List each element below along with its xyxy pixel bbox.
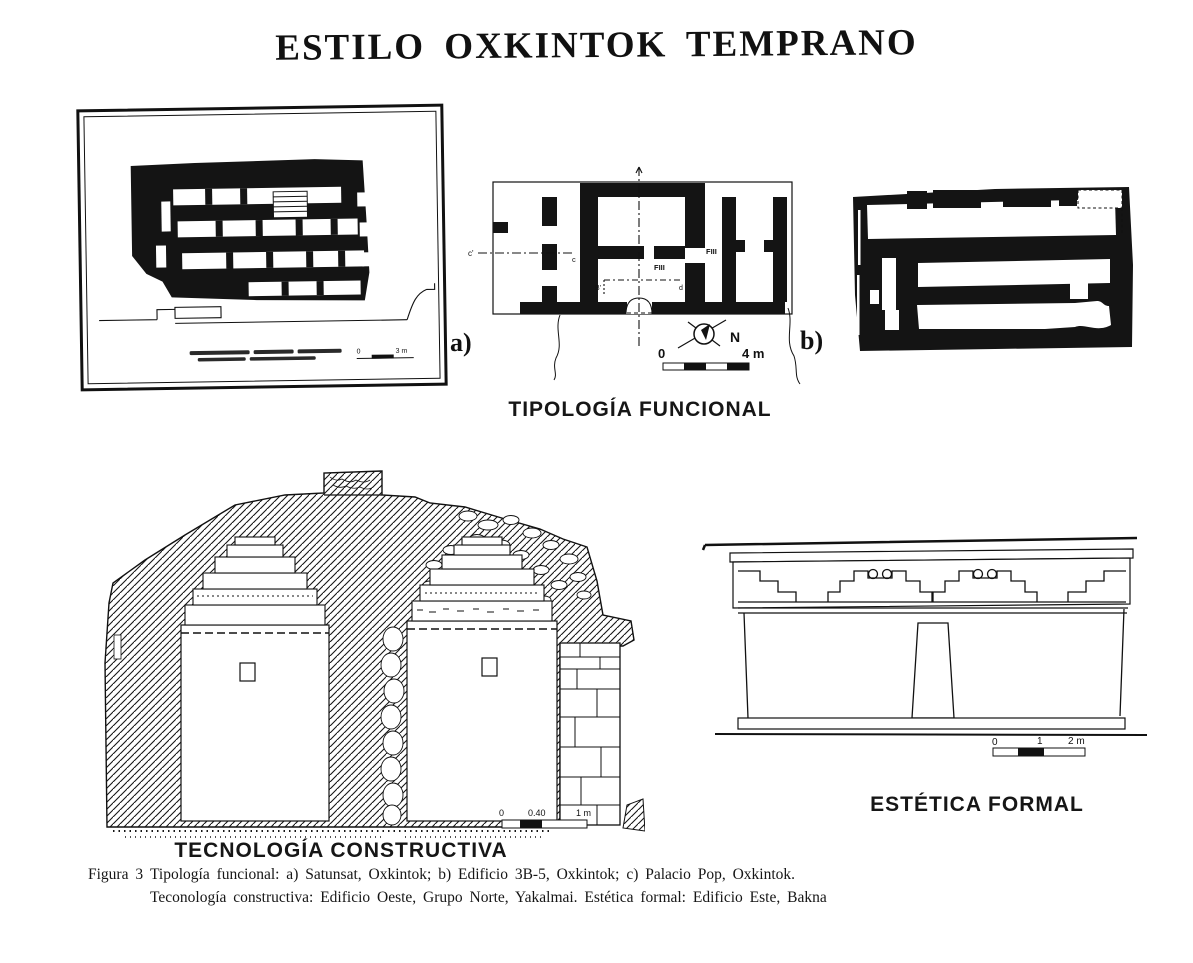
page-title: ESTILO OXKINTOK TEMPRANO bbox=[0, 19, 1193, 72]
svg-text:0.40: 0.40 bbox=[528, 808, 546, 818]
caption-line-1: Tipología funcional: a) Satunsat, Oxkint… bbox=[150, 864, 950, 887]
tipologia-funcional-label: TIPOLOGÍA FUNCIONAL bbox=[460, 398, 820, 422]
svg-text:3 m: 3 m bbox=[396, 348, 408, 355]
satunsat-plan-drawing: 0 3 m bbox=[74, 101, 450, 395]
vault-chamber-left bbox=[181, 537, 329, 821]
central-doorjamb bbox=[912, 623, 954, 718]
wall-niche-right bbox=[482, 658, 497, 676]
building-elevation-drawing: 0 1 2 m bbox=[690, 528, 1160, 760]
ground-stipple bbox=[113, 831, 553, 837]
satunsat-plan-panel: 0 3 m bbox=[74, 101, 450, 395]
room-label-fiii-left: FIII bbox=[654, 263, 665, 272]
svg-text:0: 0 bbox=[992, 737, 998, 748]
palacio-pop-plan-drawing bbox=[845, 175, 1135, 360]
estetica-formal-label: ESTÉTICA FORMAL bbox=[802, 793, 1152, 817]
edificio-3b5-plan-drawing: c' c B' d FIII FIII N 0 4 m bbox=[468, 158, 808, 388]
svg-text:2 m: 2 m bbox=[1068, 736, 1085, 747]
section-label-d: d bbox=[679, 285, 683, 292]
caption-line-2: Teconología constructiva: Edificio Oeste… bbox=[150, 887, 950, 910]
construction-section-drawing: 0 0.40 1 m bbox=[85, 453, 645, 838]
wall-niche-left bbox=[240, 663, 255, 681]
plan-b-walls bbox=[493, 183, 787, 314]
section-label-c-prime: c' bbox=[468, 249, 474, 258]
svg-text:1 m: 1 m bbox=[576, 808, 591, 818]
room-label-fiii-right: FIII bbox=[706, 247, 717, 256]
construction-section-panel: 0 0.40 1 m bbox=[85, 453, 645, 838]
palacio-pop-plan-panel bbox=[845, 175, 1135, 360]
satunsat-wall-mass bbox=[131, 158, 372, 304]
tecnologia-constructiva-label: TECNOLOGÍA CONSTRUCTIVA bbox=[166, 839, 516, 863]
figure-caption-text: Tipología funcional: a) Satunsat, Oxkint… bbox=[150, 864, 950, 910]
stairway-detail bbox=[273, 191, 307, 218]
north-label: N bbox=[730, 329, 740, 345]
svg-text:0: 0 bbox=[357, 348, 361, 355]
roof-line bbox=[703, 538, 1137, 550]
svg-text:0: 0 bbox=[658, 346, 665, 361]
plan-c-lower-room bbox=[917, 301, 1111, 329]
ground-mound bbox=[623, 799, 645, 831]
svg-text:1: 1 bbox=[1037, 736, 1043, 747]
wall-top-molding bbox=[738, 608, 1128, 613]
vault-chamber-right bbox=[407, 537, 557, 821]
figure-caption: Figura 3 Tipología funcional: a) Satunsa… bbox=[88, 864, 958, 910]
svg-text:0: 0 bbox=[499, 808, 504, 818]
north-compass-icon: N bbox=[678, 320, 740, 348]
elevation-scale-bar: 0 1 2 m bbox=[992, 736, 1085, 756]
plan-b-letter: b) bbox=[800, 326, 823, 356]
plan-a-scale-bar: 0 3 m bbox=[357, 348, 414, 359]
section-label-b-prime: B' bbox=[595, 285, 601, 292]
scanned-figure-page: ESTILO OXKINTOK TEMPRANO bbox=[0, 0, 1193, 963]
plan-b-scale-bar: 0 4 m bbox=[658, 346, 764, 370]
building-elevation-panel: 0 1 2 m bbox=[690, 528, 1160, 760]
ground-line bbox=[715, 734, 1147, 735]
illegible-caption-smudge bbox=[190, 349, 342, 362]
plan-c-corridor bbox=[918, 259, 1110, 287]
base-platform bbox=[738, 718, 1125, 729]
figure-number: Figura 3 bbox=[88, 864, 150, 887]
edificio-3b5-plan-panel: c' c B' d FIII FIII N 0 4 m bbox=[468, 158, 808, 388]
plan-b-doorways bbox=[542, 226, 705, 314]
svg-text:4 m: 4 m bbox=[742, 346, 764, 361]
masonry-facing-pillar bbox=[560, 643, 620, 825]
section-label-c: c bbox=[572, 255, 576, 264]
